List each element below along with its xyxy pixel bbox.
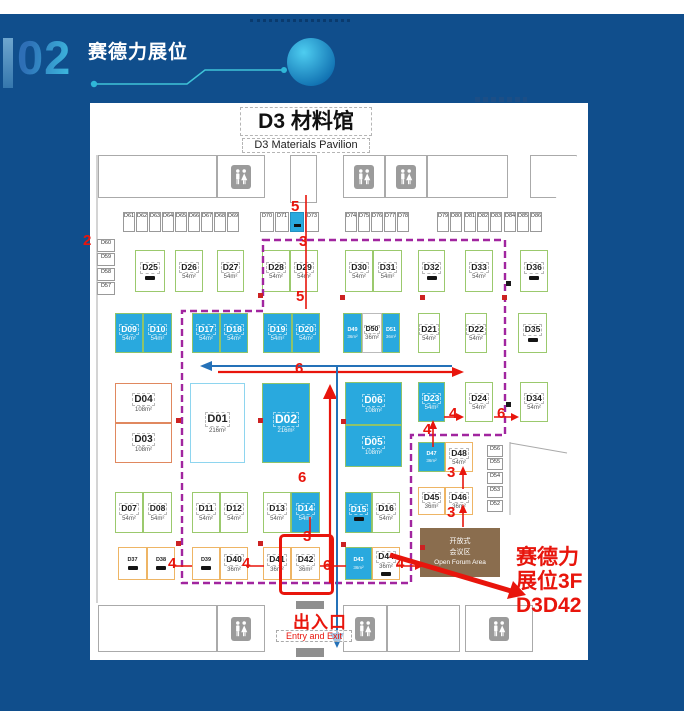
booth-label: D36 — [524, 262, 544, 273]
booth-D64: D64 — [162, 212, 174, 232]
decor-dot — [281, 67, 287, 73]
entry-door-block — [296, 648, 324, 657]
booth-label: D04 — [132, 393, 154, 406]
booth-label: D07 — [119, 503, 139, 514]
exhibitor-logo — [354, 517, 364, 521]
booth-label: D05 — [362, 436, 384, 449]
floor-plan: D3 材料馆 D3 Materials Pavilion D25D2654m²D… — [90, 103, 588, 660]
booth-D13: D1354m² — [263, 492, 291, 533]
booth-label: D17 — [196, 324, 216, 335]
exhibitor-logo — [156, 566, 166, 570]
booth-D35: D35 — [518, 313, 547, 353]
decor-sphere — [287, 38, 335, 86]
booth-label: D38 — [155, 557, 167, 563]
booth-label: D02 — [273, 412, 299, 427]
booth-label: D27 — [221, 262, 241, 273]
booth-label: D29 — [294, 262, 314, 273]
booth-label: D40 — [224, 554, 244, 565]
booth-D45: D4536m² — [418, 487, 445, 515]
booth-small-11 — [290, 212, 304, 232]
header-decoration — [85, 36, 350, 92]
route-step-number: 4 — [423, 422, 431, 437]
booth-D39: D39 — [192, 547, 220, 580]
blue-left-arrowhead — [200, 361, 212, 371]
building-structure — [98, 605, 217, 652]
booth-D18: D1854m² — [220, 313, 248, 353]
booth-D69: D69 — [227, 212, 239, 232]
booth-label: D13 — [267, 503, 287, 514]
booth-label: D33 — [469, 262, 489, 273]
booth-label: D49 — [346, 327, 358, 333]
booth-area: 54m² — [425, 405, 439, 411]
booth-label: D19 — [268, 324, 288, 335]
booth-area: 54m² — [469, 336, 483, 342]
route-marker — [258, 418, 263, 423]
booth-D04: D04108m² — [115, 383, 172, 423]
exhibitor-logo — [381, 572, 391, 576]
booth-area: 54m² — [224, 274, 238, 280]
booth-area: 54m² — [227, 336, 241, 342]
booth-area: 216m² — [209, 428, 226, 434]
booth-D30: D3054m² — [345, 250, 373, 292]
booth-D08: D0854m² — [143, 492, 172, 533]
route-step-number: 4 — [396, 556, 404, 571]
booth-label: D10 — [148, 324, 168, 335]
booth-label: D09 — [119, 324, 139, 335]
booth-D61: D61 — [123, 212, 135, 232]
booth-area: 36m² — [425, 504, 439, 510]
exhibitor-logo — [201, 566, 211, 570]
building-structure — [530, 155, 577, 198]
booth-area: 54m² — [297, 274, 311, 280]
booth-D05: D05108m² — [345, 425, 402, 467]
booth-D80: D80 — [450, 212, 462, 232]
booth-D23: D2354m² — [418, 382, 445, 422]
booth-D50: D5036m² — [362, 313, 382, 353]
booth-D60: D60 — [97, 239, 115, 252]
restroom-block — [217, 605, 265, 652]
restroom-block — [385, 155, 427, 198]
booth-D65: D65 — [175, 212, 187, 232]
route-step-number: 6 — [298, 470, 306, 485]
booth-area: 54m² — [199, 336, 213, 342]
booth-D03: D03108m² — [115, 423, 172, 463]
booth-area: 54m² — [379, 516, 393, 522]
booth-D71: D71 — [275, 212, 289, 232]
booth-area: 108m² — [135, 447, 152, 453]
booth-D82: D82 — [477, 212, 489, 232]
booth-D52: D52 — [487, 500, 503, 512]
booth-D12: D1254m² — [220, 492, 248, 533]
booth-D16: D1654m² — [372, 492, 400, 533]
booth-D85: D85 — [517, 212, 529, 232]
booth-area: 54m² — [472, 274, 486, 280]
booth-D75: D75 — [358, 212, 370, 232]
booth-D74: D74 — [345, 212, 357, 232]
booth-D17: D1754m² — [192, 313, 220, 353]
booth-D14: D1454m² — [291, 492, 320, 533]
booth-D68: D68 — [214, 212, 226, 232]
decor-dotted-line — [250, 19, 350, 22]
booth-D86: D86 — [530, 212, 542, 232]
pavilion-title: D3 材料馆 — [240, 107, 372, 136]
booth-area: 54m² — [381, 274, 395, 280]
decor-dot — [91, 81, 97, 87]
booth-area: 36m² — [426, 458, 436, 463]
booth-D79: D79 — [437, 212, 449, 232]
exhibitor-logo — [529, 276, 539, 280]
booth-label: D21 — [419, 324, 439, 335]
booth-area: 54m² — [227, 516, 241, 522]
route-marker — [341, 542, 346, 547]
booth-D11: D1154m² — [192, 492, 220, 533]
booth-area: 36m² — [379, 564, 393, 570]
booth-D81: D81 — [464, 212, 476, 232]
entry-exit-label-en: Entry and Exit — [276, 630, 352, 642]
restroom-icon — [231, 165, 251, 189]
booth-label: D32 — [422, 262, 442, 273]
route-marker — [258, 541, 263, 546]
booth-D25: D25 — [135, 250, 165, 292]
booth-D28: D2854m² — [262, 250, 290, 292]
booth-D66: D66 — [188, 212, 200, 232]
booth-label: D45 — [422, 492, 442, 503]
booth-label: D50 — [364, 325, 381, 335]
booth-D22: D2254m² — [465, 313, 487, 353]
booth-label: D44 — [376, 551, 396, 562]
booth-D36: D36 — [520, 250, 548, 292]
booth-area: 54m² — [299, 336, 313, 342]
booth-D84: D84 — [504, 212, 516, 232]
column-marker — [506, 402, 511, 407]
booth-label: D16 — [376, 503, 396, 514]
booth-D62: D62 — [136, 212, 148, 232]
route-marker — [420, 545, 425, 550]
booth-label: D03 — [132, 433, 154, 446]
booth-label: D26 — [179, 262, 199, 273]
section-number: 02 — [17, 30, 71, 85]
route-marker — [176, 418, 181, 423]
route-step-number: 6 — [497, 406, 505, 421]
booth-label: D11 — [196, 503, 215, 514]
booth-D01: D01216m² — [190, 383, 245, 463]
booth-D70: D70 — [260, 212, 274, 232]
booth-D59: D59 — [97, 253, 115, 266]
route-step-number: 3 — [447, 465, 455, 480]
booth-D76: D76 — [371, 212, 383, 232]
booth-D06: D06108m² — [345, 382, 402, 425]
booth-area: 108m² — [365, 408, 382, 414]
booth-D21: D2154m² — [418, 313, 440, 353]
booth-label: D20 — [296, 324, 316, 335]
booth-area: 54m² — [271, 336, 285, 342]
booth-area: 54m² — [527, 405, 541, 411]
booth-area: 36m² — [347, 334, 357, 339]
restroom-icon — [231, 617, 251, 641]
booth-label: D48 — [449, 448, 469, 459]
booth-area: 36m² — [227, 567, 241, 573]
booth-D73: D73 — [305, 212, 319, 232]
booth-D07: D0754m² — [115, 492, 143, 533]
exhibitor-logo — [128, 566, 138, 570]
route-step-number: 3 — [447, 505, 455, 520]
booth-area: 54m² — [422, 336, 436, 342]
booth-D15: D15 — [345, 492, 372, 533]
booth-D27: D2754m² — [217, 250, 244, 292]
booth-label: D06 — [362, 394, 384, 407]
header-accent-bar — [3, 38, 13, 88]
building-structure — [387, 605, 460, 652]
booth-area: 108m² — [365, 450, 382, 456]
booth-area: 54m² — [270, 516, 284, 522]
restroom-icon — [489, 617, 509, 641]
booth-area: 36m² — [365, 335, 379, 341]
booth-label: D34 — [524, 393, 544, 404]
route-step-number: 5 — [291, 199, 299, 214]
booth-area: 54m² — [269, 274, 283, 280]
exhibitor-logo — [427, 276, 437, 280]
booth-D51: D5136m² — [382, 313, 400, 353]
cropped-text-dashes — [475, 97, 527, 102]
route-step-number: 3 — [299, 234, 307, 249]
saideli-booth-annotation: 赛德力 展位3F D3D42 — [516, 546, 600, 618]
booth-D53: D53 — [487, 486, 503, 498]
booth-label: D35 — [523, 324, 543, 335]
booth-d42-highlight — [279, 534, 334, 595]
building-structure — [290, 155, 317, 203]
booth-label: D30 — [349, 262, 369, 273]
booth-label: D51 — [385, 327, 397, 333]
booth-D55: D55 — [487, 458, 503, 470]
booth-D32: D32 — [418, 250, 445, 292]
route-marker — [258, 293, 263, 298]
top-white-strip — [0, 0, 684, 14]
booth-label: D15 — [349, 504, 369, 515]
red-up-arrowhead — [323, 384, 337, 399]
booth-D10: D1054m² — [143, 313, 172, 353]
restroom-icon — [355, 617, 375, 641]
booth-label: D46 — [449, 492, 469, 503]
route-step-number: 4 — [449, 406, 457, 421]
booth-D24: D2454m² — [465, 382, 493, 422]
booth-label: D28 — [266, 262, 286, 273]
booth-D77: D77 — [384, 212, 396, 232]
booth-D47: D4736m² — [418, 442, 445, 472]
booth-D83: D83 — [490, 212, 502, 232]
booth-label: D37 — [126, 557, 138, 563]
booth-label: D31 — [378, 262, 398, 273]
booth-D34: D3454m² — [520, 382, 548, 422]
booth-D29: D2954m² — [290, 250, 318, 292]
booth-D78: D78 — [397, 212, 409, 232]
booth-label: D01 — [205, 412, 229, 426]
column-marker — [506, 281, 511, 286]
booth-D19: D1954m² — [263, 313, 292, 353]
open-forum-area: 开放式 会议区 Open Forum Area — [420, 528, 500, 577]
booth-D31: D3154m² — [373, 250, 402, 292]
right-wall-diagonal — [510, 443, 567, 453]
restroom-block — [217, 155, 265, 198]
restroom-icon — [354, 165, 374, 189]
booth-D63: D63 — [149, 212, 161, 232]
booth-area: 36m² — [386, 334, 396, 339]
booth-D67: D67 — [201, 212, 213, 232]
booth-area: 36m² — [353, 565, 363, 570]
route-marker — [341, 419, 346, 424]
booth-label: D47 — [425, 451, 437, 457]
booth-area: 54m² — [122, 516, 136, 522]
booth-area: 54m² — [199, 516, 213, 522]
booth-D26: D2654m² — [175, 250, 203, 292]
booth-label: D23 — [422, 393, 442, 404]
route-marker — [176, 541, 181, 546]
booth-label: D08 — [148, 503, 168, 514]
booth-label: D39 — [200, 557, 212, 563]
restroom-block — [343, 155, 385, 198]
route-step-number: 6 — [295, 361, 303, 376]
booth-D56: D56 — [487, 445, 503, 457]
booth-label: D22 — [466, 324, 486, 335]
route-marker — [340, 295, 345, 300]
booth-label: D12 — [224, 503, 244, 514]
booth-area: 54m² — [122, 336, 136, 342]
booth-D02: D02216m² — [262, 383, 310, 463]
booth-D43: D4336m² — [345, 547, 372, 580]
building-structure — [98, 155, 217, 198]
booth-D09: D0954m² — [115, 313, 143, 353]
route-step-number: 4 — [242, 556, 250, 571]
booth-D20: D2054m² — [292, 313, 320, 353]
pavilion-subtitle: D3 Materials Pavilion — [242, 138, 370, 153]
route-marker — [420, 295, 425, 300]
booth-area: 54m² — [352, 274, 366, 280]
booth-D58: D58 — [97, 268, 115, 281]
booth-D49: D4936m² — [343, 313, 362, 353]
booth-area: 216m² — [277, 428, 294, 434]
exhibitor-logo — [528, 338, 538, 342]
booth-D37: D37 — [118, 547, 147, 580]
booth-area: 54m² — [299, 516, 313, 522]
booth-label: D14 — [296, 503, 316, 514]
restroom-icon — [396, 165, 416, 189]
red-right-arrowhead — [452, 367, 464, 377]
booth-D33: D3354m² — [465, 250, 493, 292]
booth-area: 54m² — [472, 405, 486, 411]
route-step-number: 4 — [168, 556, 176, 571]
route-step-number: 5 — [296, 289, 304, 304]
route-step-number: 2 — [83, 233, 91, 248]
booth-label: D18 — [224, 324, 244, 335]
booth-area: 54m² — [151, 516, 165, 522]
route-marker — [502, 295, 507, 300]
building-structure — [427, 155, 508, 198]
booth-area: 54m² — [151, 336, 165, 342]
booth-label: D43 — [352, 557, 364, 563]
exhibitor-logo — [145, 276, 155, 280]
booth-area: 54m² — [182, 274, 196, 280]
booth-label: D25 — [140, 262, 160, 273]
booth-label: D24 — [469, 393, 489, 404]
booth-D57: D57 — [97, 282, 115, 295]
booth-D54: D54 — [487, 472, 503, 484]
booth-area: 108m² — [135, 407, 152, 413]
